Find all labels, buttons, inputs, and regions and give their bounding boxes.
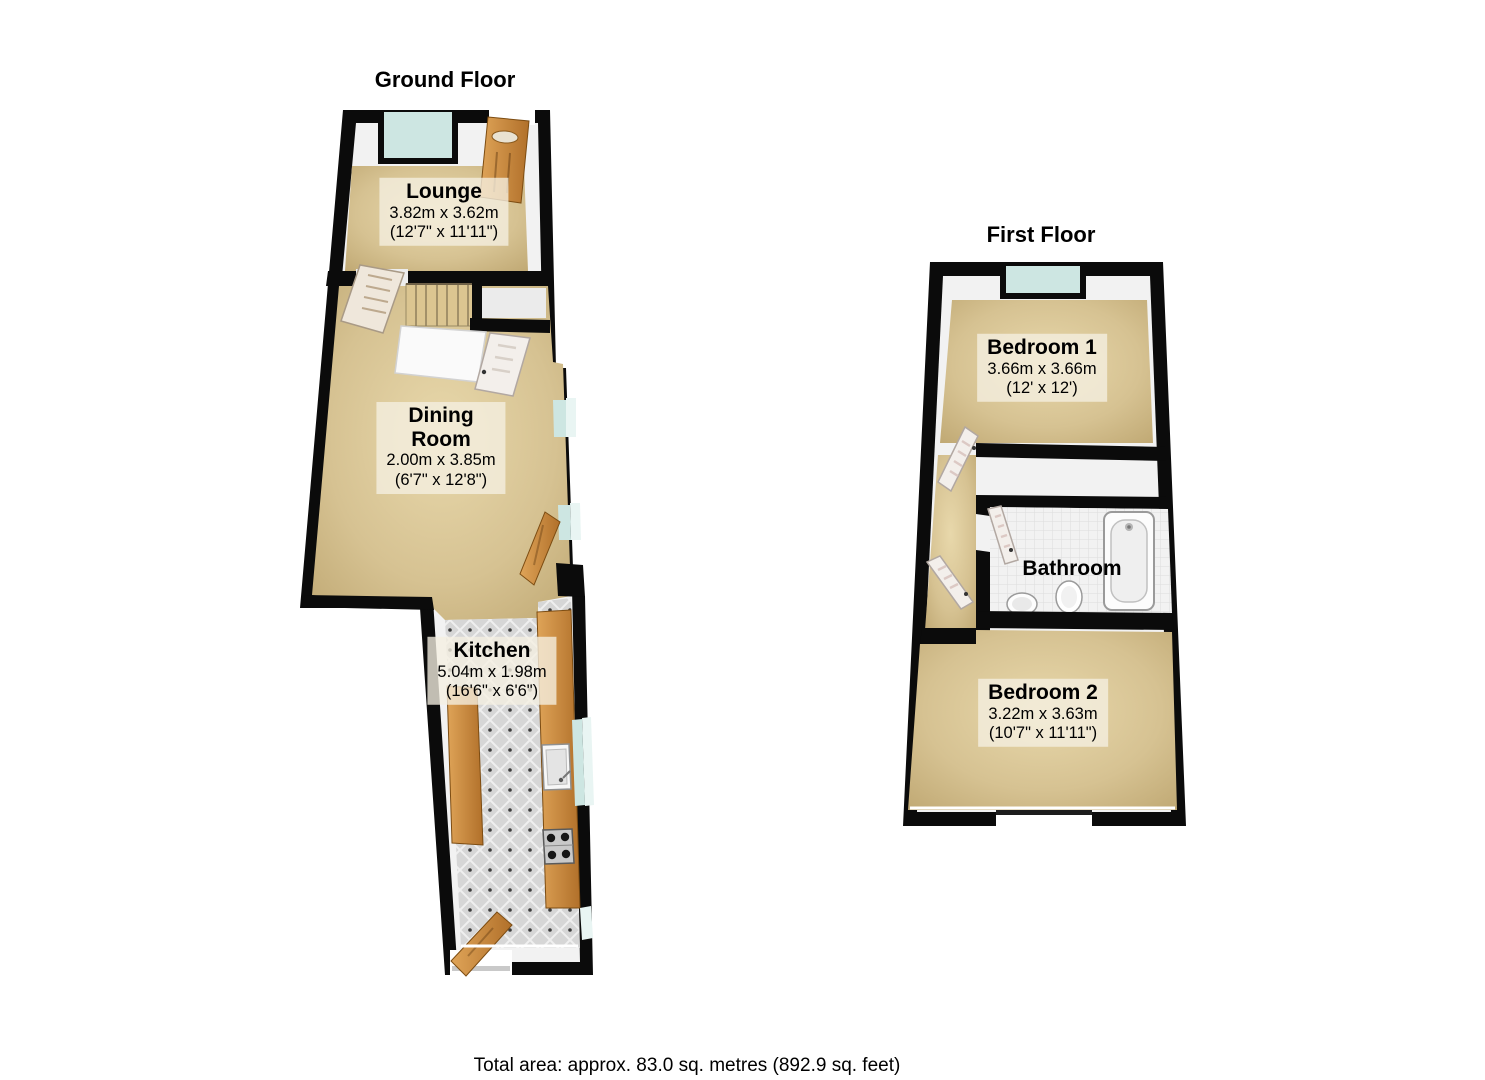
kitchen-size-imperial: (16'6" x 6'6") <box>437 682 546 701</box>
kitchen-size-metric: 5.04m x 1.98m <box>437 662 546 681</box>
dining-room-name-line1: Dining <box>386 404 495 428</box>
dining-nook <box>482 288 546 318</box>
stair-nook-wall <box>470 318 550 333</box>
dining-room-size-imperial: (6'7" x 12'8") <box>386 471 495 490</box>
bathroom-name: Bathroom <box>1022 557 1121 581</box>
bedroom2-label: Bedroom 2 3.22m x 3.63m (10'7" x 11'11") <box>978 679 1108 747</box>
lounge-label: Lounge 3.82m x 3.62m (12'7" x 11'11") <box>379 178 508 246</box>
bedroom1-size-metric: 3.66m x 3.66m <box>987 359 1097 378</box>
bathroom-top-wall <box>976 495 1168 509</box>
kitchen-sink <box>542 744 571 790</box>
first-floor-title: First Floor <box>987 222 1096 248</box>
dining-room-label: Dining Room 2.00m x 3.85m (6'7" x 12'8") <box>376 402 505 494</box>
staircase <box>406 284 478 326</box>
bedroom2-window <box>996 810 1092 815</box>
total-area-caption: Total area: approx. 83.0 sq. metres (892… <box>474 1055 901 1077</box>
bay-window-glass <box>384 112 452 158</box>
bedroom1-label: Bedroom 1 3.66m x 3.66m (12' x 12') <box>977 334 1107 402</box>
bedroom1-size-imperial: (12' x 12') <box>987 379 1097 398</box>
bathroom-bottom-wall <box>976 611 1174 630</box>
bedroom2-size-imperial: (10'7" x 11'11") <box>988 724 1098 743</box>
kitchen-label: Kitchen 5.04m x 1.98m (16'6" x 6'6") <box>427 637 556 705</box>
bedroom2-name: Bedroom 2 <box>988 681 1098 705</box>
kitchen-name: Kitchen <box>437 639 546 663</box>
bathroom-left-wall-upper <box>976 495 990 516</box>
bedroom1-name: Bedroom 1 <box>987 336 1097 360</box>
kitchen-hob <box>543 829 574 864</box>
bedroom2-size-metric: 3.22m x 3.63m <box>988 704 1098 723</box>
bathroom-label: Bathroom <box>1022 557 1121 581</box>
lounge-size-metric: 3.82m x 3.62m <box>389 203 498 222</box>
lounge-size-imperial: (12'7" x 11'11") <box>389 223 498 242</box>
dining-room-name-line2: Room <box>386 428 495 452</box>
ground-floor-title: Ground Floor <box>375 67 516 93</box>
understair-wall <box>395 326 486 382</box>
lounge-name: Lounge <box>389 180 498 204</box>
bedroom2-top-wall <box>920 628 976 644</box>
toilet <box>1056 581 1082 613</box>
stair-side-wall <box>472 271 482 323</box>
dining-room-size-metric: 2.00m x 3.85m <box>386 451 495 470</box>
bedroom1-window <box>1003 262 1083 296</box>
floorplans-svg <box>0 0 1485 1080</box>
kitchen-jog-wall <box>556 563 585 597</box>
kitchen-counter-left <box>447 686 483 845</box>
lounge-bay-window <box>381 110 455 161</box>
floorplan-page: Ground Floor Lounge 3.82m x 3.62m (12'7"… <box>0 0 1485 1080</box>
